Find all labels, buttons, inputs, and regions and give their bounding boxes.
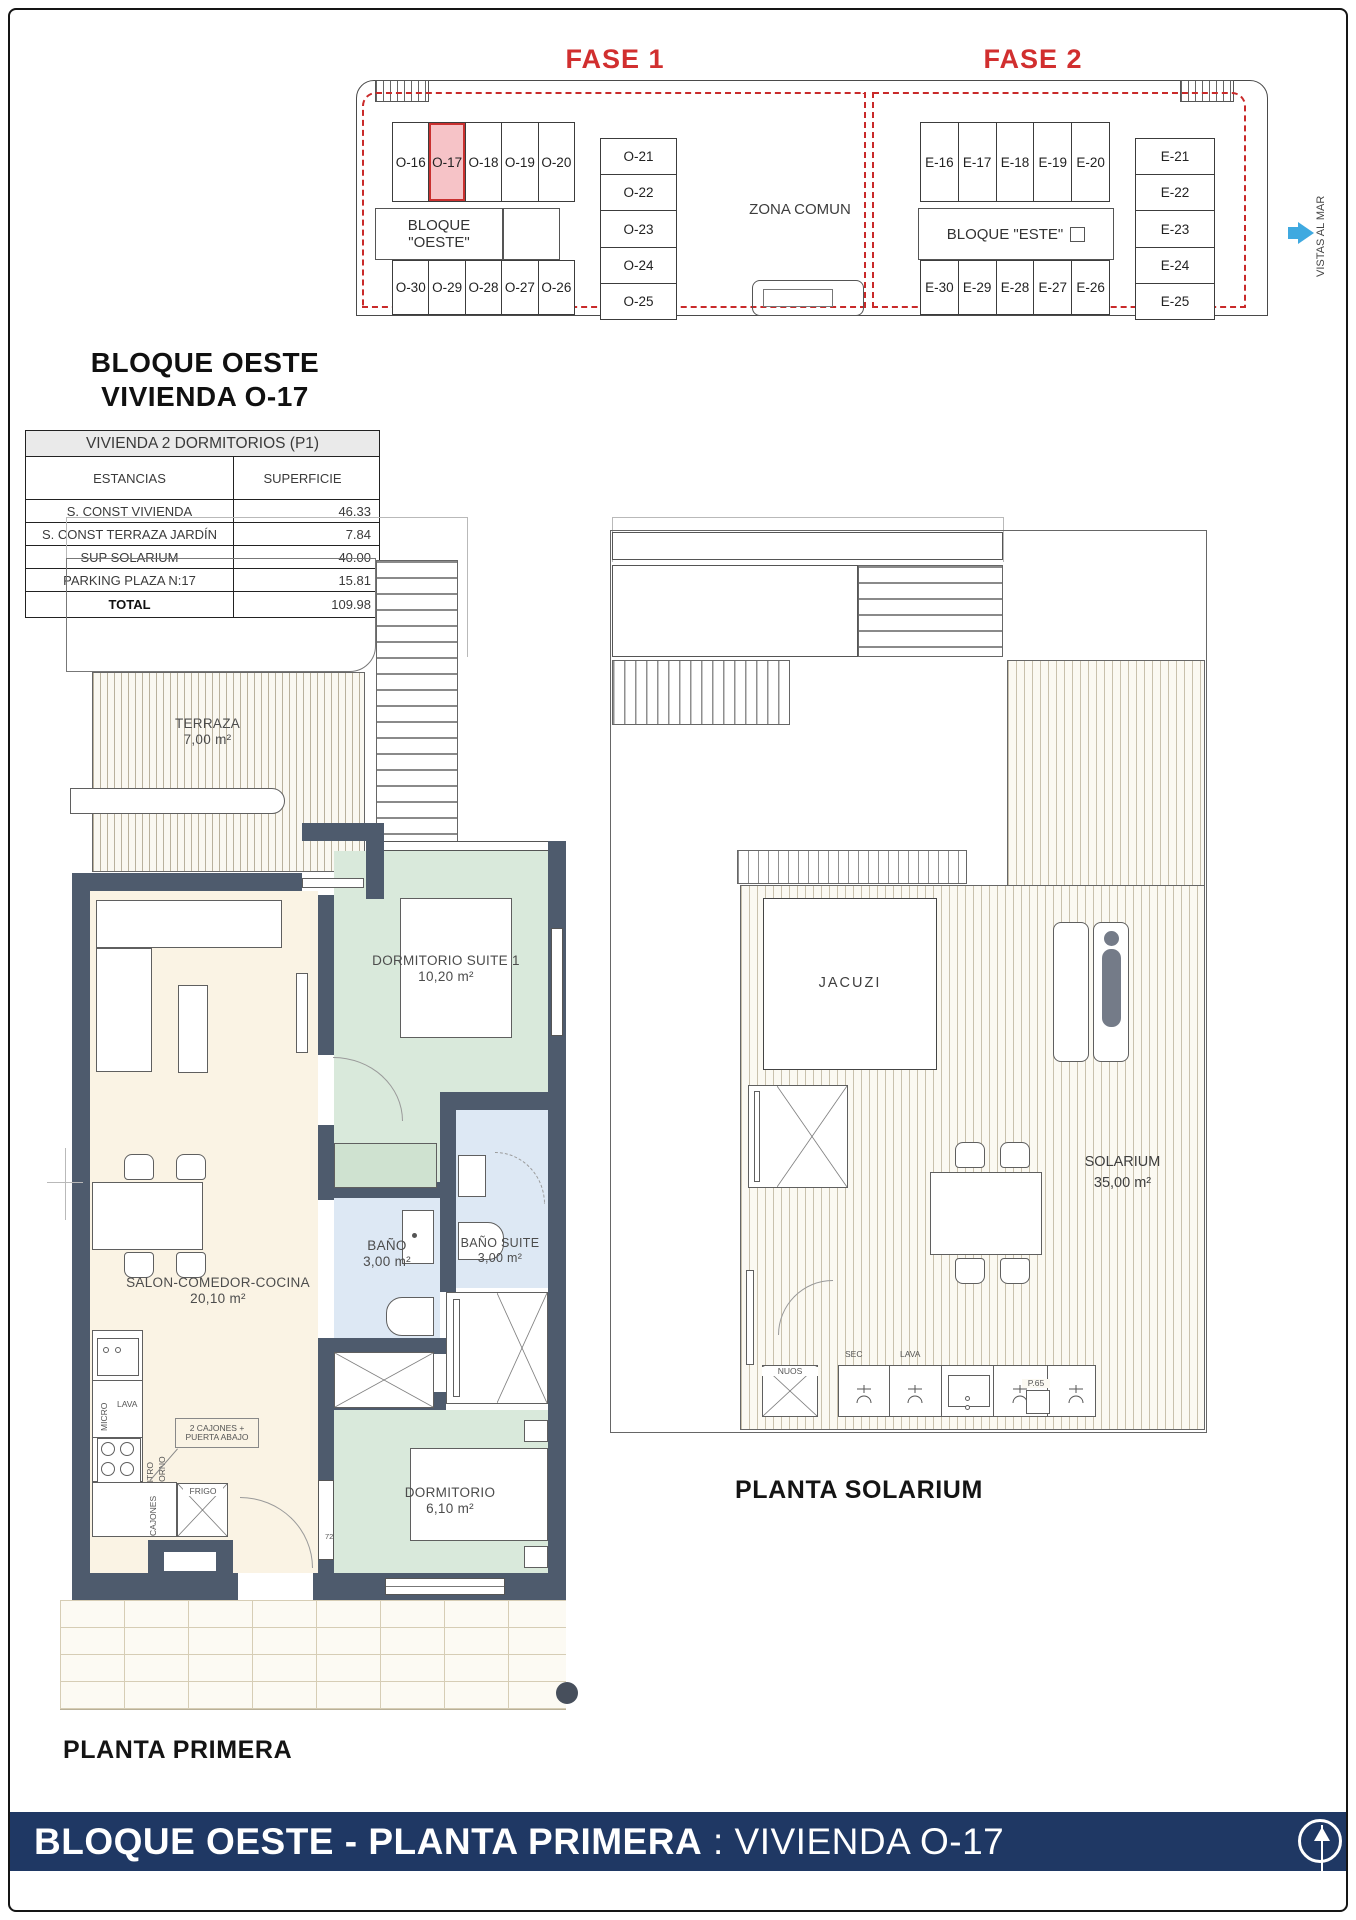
unit-cell-e23: E-23: [1136, 211, 1214, 247]
unit-cell-e20: E-20: [1072, 123, 1109, 201]
room-name: BAÑO: [345, 1238, 429, 1254]
unit-cell-e18: E-18: [997, 123, 1035, 201]
unit-title: BLOQUE OESTE VIVIENDA O-17: [60, 346, 350, 414]
footer-banner: BLOQUE OESTE - PLANTA PRIMERA : VIVIENDA…: [10, 1812, 1346, 1871]
wall-segment: [366, 841, 384, 899]
counter-divider: [889, 1366, 890, 1416]
dimension-line: [467, 517, 468, 657]
stairwell-hatch: [612, 660, 790, 725]
unit-cell-o16: O-16: [393, 123, 429, 201]
person-figure-head: [1104, 931, 1119, 946]
counter-divider: [941, 1366, 942, 1416]
washer-knob: [965, 1405, 970, 1410]
room-area: 35,00 m²: [1055, 1175, 1190, 1192]
nightstand: [524, 1546, 548, 1568]
setback-outline: [66, 558, 376, 672]
oeste-right-column: O-21 O-22 O-23 O-24 O-25: [600, 138, 677, 320]
room-area: 3,00 m²: [345, 1254, 429, 1270]
terraza-balustrade: [70, 788, 285, 814]
fase1-title: FASE 1: [540, 44, 690, 75]
window-slot: [385, 1578, 505, 1595]
kitchen-callout: 2 CAJONES + PUERTA ABAJO: [175, 1418, 259, 1448]
nuos-label: NUOS: [762, 1367, 818, 1376]
bloque-oeste-label-1: BLOQUE: [408, 217, 471, 234]
closet-chevron: [777, 1086, 847, 1187]
este-bottom-row: E-30 E-29 E-28 E-27 E-26: [920, 260, 1110, 315]
unit-cell-e17: E-17: [959, 123, 997, 201]
room-name: TERRAZA: [130, 716, 285, 732]
unit-cell-o30: O-30: [393, 261, 429, 314]
sink-knob: [103, 1347, 109, 1353]
unit-label: O-17: [432, 155, 462, 170]
room-area: 10,20 m²: [361, 969, 531, 985]
unit-label: O-19: [505, 155, 535, 170]
unit-label: O-27: [505, 280, 535, 295]
unit-label: O-23: [623, 222, 653, 237]
oeste-bottom-row: O-30 O-29 O-28 O-27 O-26: [392, 260, 575, 315]
closet-rail: [754, 1091, 760, 1182]
room-area: 20,10 m²: [118, 1291, 318, 1307]
lava-label: LAVA: [117, 1400, 147, 1409]
plan-document-page: FASE 1 FASE 2 O-16 O-17 O-18 O-19 O-20 B…: [0, 0, 1356, 1920]
wardrobe-chevron: [497, 1293, 547, 1403]
unit-label: E-29: [963, 280, 992, 295]
bano-toilet: [386, 1297, 434, 1336]
counter-divider: [92, 1380, 143, 1381]
sink-knob: [115, 1347, 121, 1353]
solarium-slat-band: [858, 565, 1003, 657]
footer-separator: :: [702, 1821, 734, 1863]
north-arrow-icon: [1298, 1819, 1342, 1863]
wardrobe-rail: [453, 1299, 460, 1397]
dimension-line: [66, 517, 468, 518]
bloque-oeste-band: BLOQUE "OESTE": [375, 208, 503, 260]
unit-cell-e16: E-16: [921, 123, 959, 201]
wall-stub: [746, 1270, 754, 1365]
dimension-line: [47, 1182, 83, 1183]
horno-label: HORNO: [158, 1436, 169, 1488]
window-line: [386, 1586, 504, 1587]
coffee-table: [178, 985, 208, 1073]
unit-cell-o27: O-27: [502, 261, 538, 314]
unit-label: E-16: [925, 155, 954, 170]
unit-cell-o29: O-29: [429, 261, 465, 314]
unit-cell-e30: E-30: [921, 261, 959, 314]
unit-label: E-17: [963, 155, 992, 170]
patio-chair: [1000, 1258, 1030, 1284]
jacuzzi: JACUZI: [763, 898, 937, 1070]
outdoor-socket-box: [1026, 1390, 1050, 1414]
unit-label: O-20: [541, 155, 571, 170]
room-name: DORMITORIO: [365, 1485, 535, 1501]
unit-label: O-24: [623, 258, 653, 273]
sea-arrow-icon: [1288, 227, 1298, 239]
unit-cell-e24: E-24: [1136, 248, 1214, 284]
sliding-window: [302, 878, 364, 888]
lava-label-solarium: LAVA: [900, 1350, 940, 1359]
col-superficie: SUPERFICIE: [234, 457, 379, 499]
patio-chair: [955, 1258, 985, 1284]
bloque-este-band: BLOQUE "ESTE": [918, 208, 1114, 260]
unit-label: E-21: [1161, 149, 1190, 164]
dimension-line: [65, 1148, 66, 1220]
room-area: 3,00 m²: [452, 1251, 548, 1266]
unit-label: O-16: [396, 155, 426, 170]
cajones-label: CAJONES: [149, 1486, 161, 1536]
dining-chair: [124, 1154, 154, 1180]
kitchen-sink: [97, 1338, 139, 1376]
wall-segment: [90, 1573, 238, 1600]
este-top-row: E-16 E-17 E-18 E-19 E-20: [920, 122, 1110, 202]
unit-cell-e22: E-22: [1136, 175, 1214, 211]
hob-ring: [101, 1462, 115, 1476]
jacuzi-label: JACUZI: [819, 975, 882, 992]
sec-label: SEC: [845, 1350, 875, 1359]
surface-table-header: VIVIENDA 2 DORMITORIOS (P1): [26, 431, 379, 457]
porch-step: [164, 1552, 216, 1571]
washer-box: [948, 1375, 990, 1407]
pool-shape: [752, 280, 864, 316]
unit-label: E-24: [1161, 258, 1190, 273]
deck-right-extension: [1007, 660, 1205, 886]
utility-counter: [838, 1365, 1096, 1417]
bloque-oeste-extension: [503, 208, 560, 260]
table-column-row: ESTANCIAS SUPERFICIE: [26, 457, 379, 500]
row-label: S. CONST VIVIENDA: [26, 500, 234, 522]
solarium-closet: [748, 1085, 848, 1188]
neighbor-slats: [376, 560, 458, 870]
row-label: S. CONST TERRAZA JARDÍN: [26, 523, 234, 545]
hob-ring: [120, 1462, 134, 1476]
unit-cell-o24: O-24: [601, 248, 676, 284]
salon-label: SALON-COMEDOR-COCINA 20,10 m²: [118, 1275, 318, 1307]
unit-cell-e19: E-19: [1034, 123, 1072, 201]
room-name: DORMITORIO SUITE 1: [361, 953, 531, 969]
suite-vanity: [458, 1155, 486, 1197]
unit-cell-e27: E-27: [1034, 261, 1072, 314]
unit-cell-o22: O-22: [601, 175, 676, 211]
terraza-label: TERRAZA 7,00 m²: [130, 716, 285, 748]
north-arrow-head: [1314, 1827, 1330, 1841]
unit-cell-e26: E-26: [1072, 261, 1109, 314]
wall-segment: [302, 823, 384, 841]
unit-label: O-28: [469, 280, 499, 295]
ip-rating-label: P.65: [1022, 1379, 1050, 1388]
oeste-top-row: O-16 O-17 O-18 O-19 O-20: [392, 122, 575, 202]
sink-symbol-icon: [904, 1384, 926, 1406]
solarium-top-left: [612, 565, 858, 657]
sea-arrow-head: [1298, 222, 1314, 244]
unit-cell-o25: O-25: [601, 284, 676, 319]
sink-symbol-icon: [853, 1384, 875, 1406]
unit-label: E-28: [1001, 280, 1030, 295]
patio-table: [930, 1172, 1042, 1255]
terraza-area: [92, 672, 365, 872]
unit-label: E-27: [1039, 280, 1068, 295]
unit-label: E-26: [1076, 280, 1105, 295]
sofa-chaise: [96, 948, 152, 1072]
unit-label: E-22: [1161, 185, 1190, 200]
frigo-label: FRIGO: [183, 1487, 223, 1496]
unit-label: E-30: [925, 280, 954, 295]
col-estancias: ESTANCIAS: [26, 457, 234, 499]
vistas-al-mar-label: VISTAS AL MAR: [1315, 172, 1333, 300]
patio-chair: [955, 1142, 985, 1168]
room-area: 7,00 m²: [130, 732, 285, 748]
micro-label: MICRO: [100, 1385, 113, 1431]
unit-label: O-21: [623, 149, 653, 164]
deck-railing: [737, 850, 967, 884]
dormitorio-label: DORMITORIO 6,10 m²: [365, 1485, 535, 1517]
sink-symbol-icon: [1065, 1384, 1087, 1406]
unit-cell-o21: O-21: [601, 139, 676, 175]
person-figure-body: [1102, 949, 1121, 1027]
wall-segment: [72, 873, 302, 891]
unit-label: O-30: [396, 280, 426, 295]
unit-cell-o23: O-23: [601, 211, 676, 247]
unit-label: O-26: [541, 280, 571, 295]
dining-chair: [176, 1154, 206, 1180]
suite-label: DORMITORIO SUITE 1 10,20 m²: [361, 953, 531, 985]
pool-inner: [763, 289, 833, 307]
unit-cell-o26: O-26: [539, 261, 574, 314]
wall-segment: [72, 873, 90, 1600]
unit-label: O-29: [432, 280, 462, 295]
este-right-column: E-21 E-22 E-23 E-24 E-25: [1135, 138, 1215, 320]
zona-comun-label: ZONA COMUN: [740, 201, 860, 219]
bano-label: BAÑO 3,00 m²: [345, 1238, 429, 1270]
sliding-door-panel: [296, 973, 308, 1053]
washer-knob: [965, 1396, 970, 1401]
suite-bench: [334, 1143, 437, 1188]
hob-ring: [101, 1442, 115, 1456]
table-row: S. CONST VIVIENDA 46.33: [26, 500, 379, 523]
window-band: [384, 841, 548, 851]
planta-solarium-heading: PLANTA SOLARIUM: [735, 1476, 983, 1505]
vitro-label: VITRO: [146, 1436, 157, 1488]
hob-ring: [120, 1442, 134, 1456]
unit-label: E-20: [1076, 155, 1105, 170]
unit-title-line2: VIVIENDA O-17: [60, 380, 350, 414]
patio-chair: [1000, 1142, 1030, 1168]
fase2-title: FASE 2: [958, 44, 1108, 75]
unit-cell-e29: E-29: [959, 261, 997, 314]
unit-cell-o17-highlighted[interactable]: O-17: [429, 123, 465, 201]
room-name: SALON-COMEDOR-COCINA: [118, 1275, 318, 1291]
door-number-label: 72: [325, 1533, 341, 1541]
nightstand: [524, 1420, 548, 1442]
brick-path: [60, 1600, 566, 1710]
bloque-oeste-label-2: "OESTE": [408, 234, 470, 251]
unit-cell-e25: E-25: [1136, 284, 1214, 319]
unit-cell-o18: O-18: [466, 123, 502, 201]
unit-label: E-25: [1161, 294, 1190, 309]
unit-label: E-23: [1161, 222, 1190, 237]
unit-label: O-22: [623, 185, 653, 200]
bloque-este-label: BLOQUE "ESTE": [947, 226, 1064, 243]
bloque-este-square-icon: [1070, 227, 1085, 242]
unit-label: O-18: [469, 155, 499, 170]
base-cabinets: [92, 1482, 177, 1537]
solarium-label: SOLARIUM 35,00 m²: [1055, 1154, 1190, 1193]
room-name: BAÑO SUITE: [452, 1236, 548, 1251]
footer-title-bold: BLOQUE OESTE - PLANTA PRIMERA: [34, 1821, 702, 1863]
unit-cell-e28: E-28: [997, 261, 1035, 314]
solarium-top-band: [612, 532, 1003, 560]
hall-wardrobe: [334, 1352, 434, 1408]
suite-wardrobe: [446, 1292, 548, 1404]
planta-primera-heading: PLANTA PRIMERA: [63, 1736, 292, 1765]
room-name: SOLARIUM: [1055, 1154, 1190, 1171]
wall-segment: [318, 895, 334, 1055]
unit-cell-e21: E-21: [1136, 139, 1214, 175]
dimension-line: [612, 517, 1004, 518]
wall-segment: [440, 1092, 566, 1110]
unit-label: E-19: [1039, 155, 1068, 170]
counter-divider: [993, 1366, 994, 1416]
unit-cell-o20: O-20: [539, 123, 574, 201]
table-row: S. CONST TERRAZA JARDÍN 7.84: [26, 523, 379, 546]
row-value: 46.33: [234, 500, 379, 522]
sofa: [96, 900, 282, 948]
sun-lounger: [1053, 922, 1089, 1062]
door-slot: [318, 1480, 334, 1560]
dining-table: [92, 1182, 203, 1250]
window-slot: [551, 928, 563, 1036]
row-value: 7.84: [234, 523, 379, 545]
unit-cell-o19: O-19: [502, 123, 538, 201]
callout-line2: PUERTA ABAJO: [186, 1433, 249, 1442]
unit-label: O-25: [623, 294, 653, 309]
unit-cell-o28: O-28: [466, 261, 502, 314]
unit-title-line1: BLOQUE OESTE: [60, 346, 350, 380]
footer-title-unit: VIVIENDA O-17: [735, 1821, 1005, 1863]
survey-marker: [556, 1682, 578, 1704]
bano-suite-label: BAÑO SUITE 3,00 m²: [452, 1236, 548, 1266]
unit-label: E-18: [1001, 155, 1030, 170]
room-area: 6,10 m²: [365, 1501, 535, 1517]
sun-lounger: [1093, 922, 1129, 1062]
